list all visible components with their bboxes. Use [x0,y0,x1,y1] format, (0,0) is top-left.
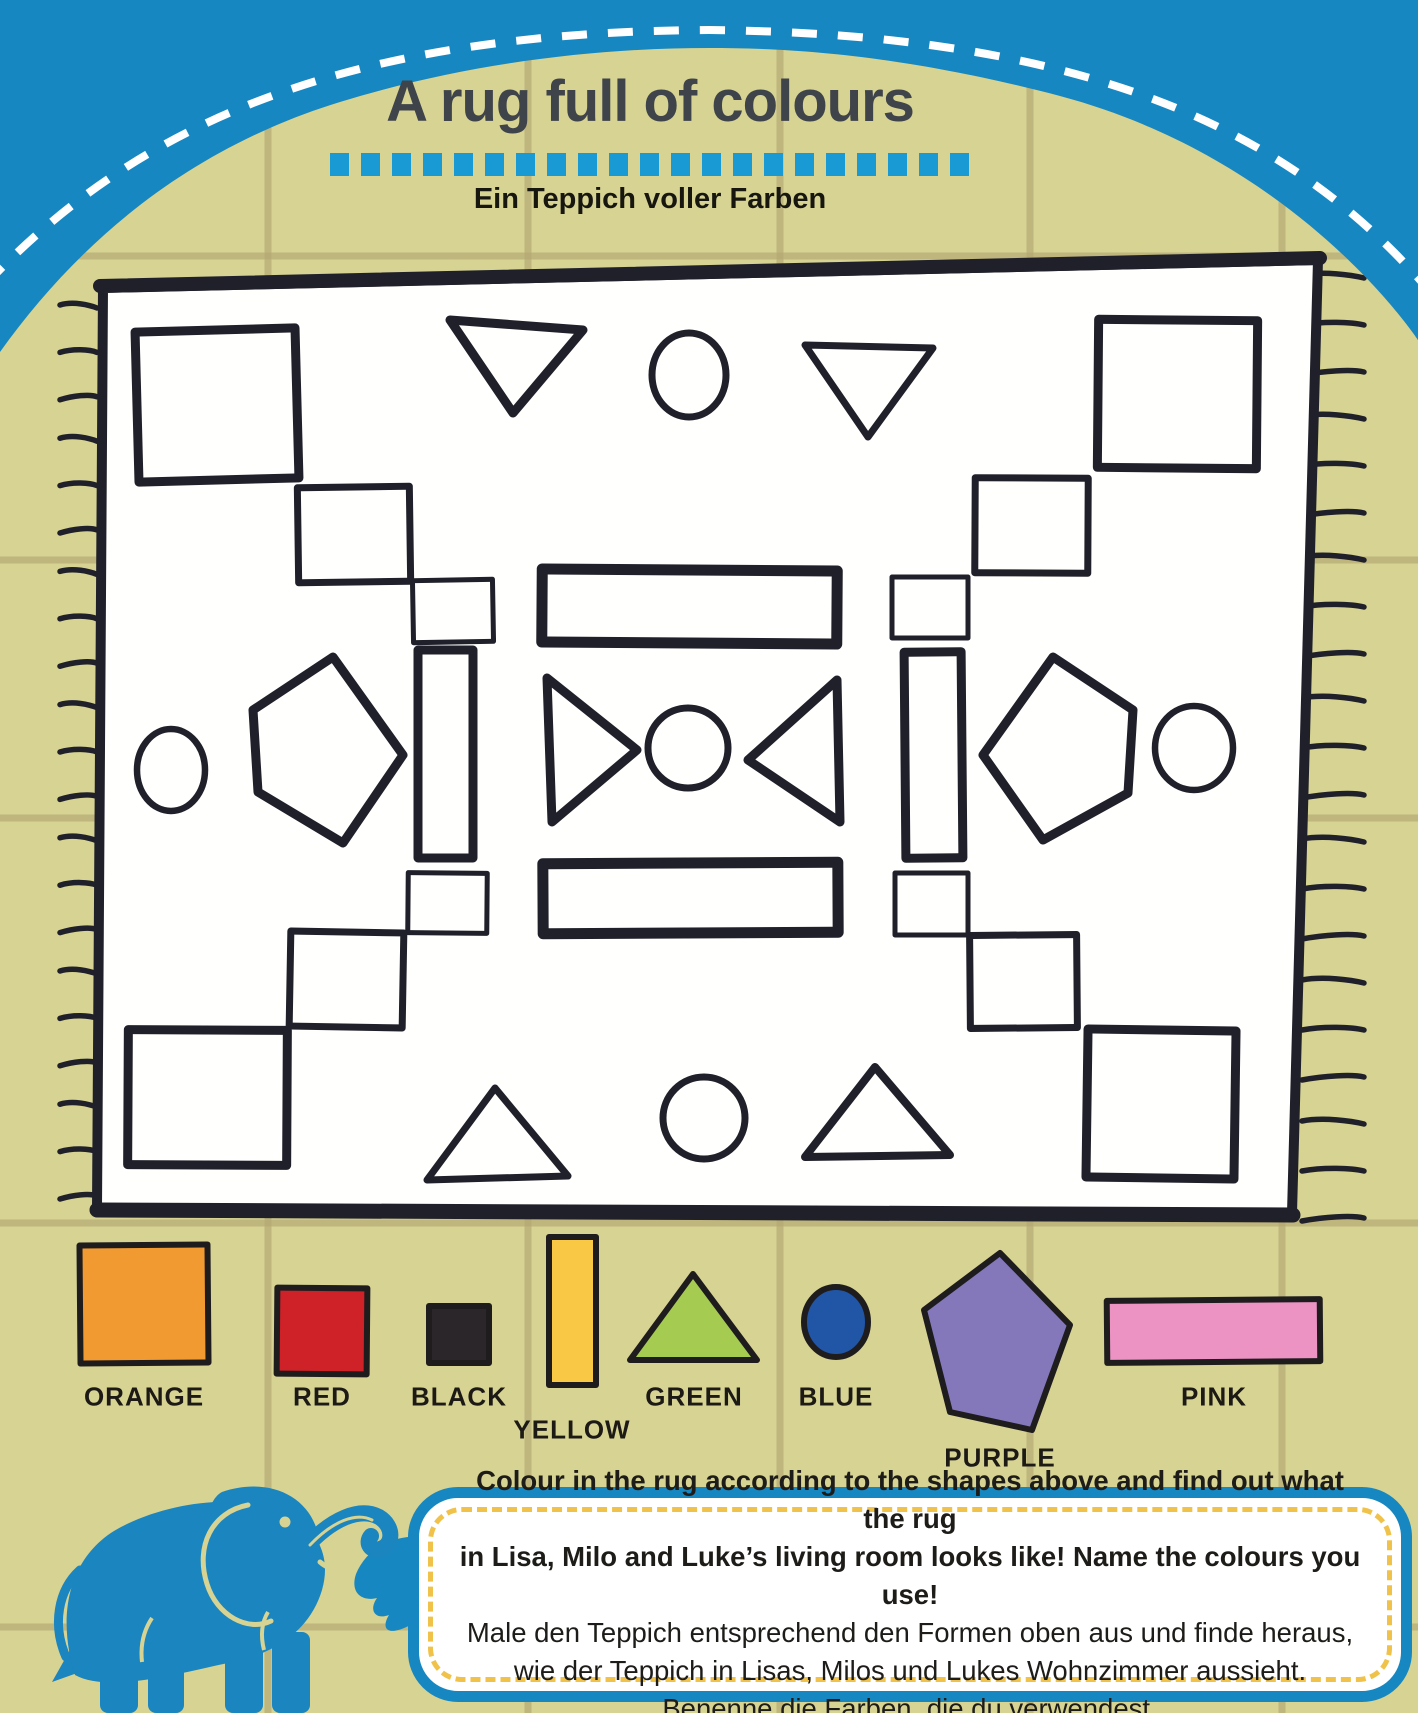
title-dash [702,153,721,176]
rug-bottom-edge [97,1210,1293,1215]
rug-fringe-tick [1302,1027,1364,1030]
rug-fringe-tick [1302,696,1364,701]
elephant-eye [280,1517,291,1528]
rug-fringe-tick [60,1149,97,1152]
rug-fringe-tick [60,749,97,752]
legend-label-pink: PINK [1181,1382,1247,1413]
title-dash [671,153,690,176]
title-dash [950,153,969,176]
header-blue-curve [0,0,1418,352]
rug-fringe-tick [60,836,97,841]
rug-fringe-tick [60,928,97,932]
rug-fringe-tick [60,1016,97,1019]
legend-label-red: RED [293,1382,351,1413]
rug-fringe-tick [60,1061,97,1065]
rug-shape-legend-swatch-green [630,1274,757,1360]
rug-fringe-tick [1302,1168,1364,1171]
title-dash [764,153,783,176]
title-dash [547,153,566,176]
title-dash [609,153,628,176]
instruction-line-en-2: in Lisa, Milo and Luke’s living room loo… [459,1538,1361,1614]
instruction-line-de-1: Male den Teppich entsprechend den Formen… [459,1614,1361,1652]
rug-fringe-tick [1302,886,1364,889]
title-dash [423,153,442,176]
title-underline-dashes [330,153,990,176]
page-title: A rug full of colours [170,68,1130,135]
instruction-line-de-2: wie der Teppich in Lisas, Milos und Luke… [459,1652,1361,1690]
title-dash [454,153,473,176]
title-dash [330,153,349,176]
legend-label-black: BLACK [411,1382,507,1413]
title-dash [516,153,535,176]
rug-fringe-tick [60,616,97,619]
rug-shape-legend-swatch-red [277,1288,368,1375]
rug-shape-legend-swatch-orange [79,1244,208,1363]
title-dash [888,153,907,176]
rug-fringe-tick [60,662,97,666]
rug-fringe-tick [60,529,97,533]
elephant-tusk [320,1562,353,1569]
title-dash [361,153,380,176]
rug-fringe-tick [1302,745,1364,748]
rug-fringe-tick [60,795,97,799]
title-dash [392,153,411,176]
title-dash [857,153,876,176]
page-subtitle: Ein Teppich voller Farben [170,183,1130,216]
title-dash [485,153,504,176]
elephant-illustration [52,1487,390,1713]
rug-fringe-tick [1302,794,1364,798]
legend-label-orange: ORANGE [84,1382,204,1413]
title-dash [578,153,597,176]
instruction-line-de-3: Benenne die Farben, die du verwendest. [459,1690,1361,1713]
legend-label-green: GREEN [645,1382,742,1413]
rug-shape-legend-swatch-blue [804,1287,868,1357]
rug-fringe-tick [1302,978,1364,983]
instruction-bubble-dashed-frame: Colour in the rug according to the shape… [428,1507,1392,1682]
rug-shape-legend-swatch-purple [924,1253,1070,1430]
rug-fringe-tick [60,483,97,486]
rug-fringe-tick [60,883,97,886]
rug-fringe-tick [60,703,97,708]
rug-fringe-tick [60,1103,97,1108]
rug-shape-legend-swatch-yellow [549,1237,596,1385]
rug-fringe-tick [1302,837,1364,842]
activity-page: A rug full of colours Ein Teppich voller… [0,0,1418,1713]
title-dash [640,153,659,176]
rug-fringe-tick [1302,1076,1364,1080]
title-dash [919,153,938,176]
instruction-bubble: Colour in the rug according to the shape… [408,1487,1412,1702]
rug-shape-legend-swatch-pink [1107,1299,1321,1363]
instruction-line-en-1: Colour in the rug according to the shape… [459,1462,1361,1538]
rug-fringe-tick [60,437,97,442]
rug-fringe-tick [1302,935,1364,939]
rug-fringe-tick [60,1195,97,1199]
title-dash [733,153,752,176]
rug-fringe-tick [60,969,97,974]
legend-label-blue: BLUE [799,1382,874,1413]
rug-fringe-tick [1302,1119,1364,1124]
title-dash [795,153,814,176]
legend-label-yellow: YELLOW [513,1415,630,1446]
rug-shape-legend-swatch-black [429,1306,489,1363]
title-dash [826,153,845,176]
rug-fringe-tick [60,570,97,575]
